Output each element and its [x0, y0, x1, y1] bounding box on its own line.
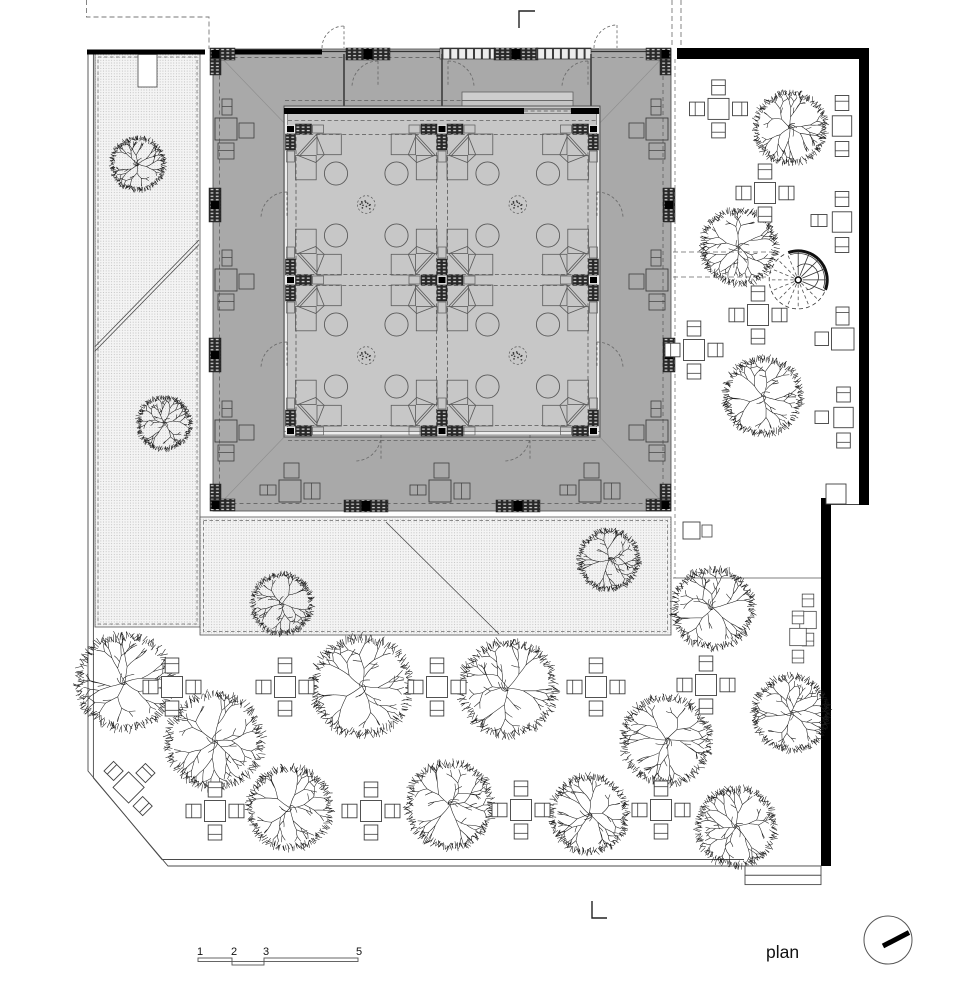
svg-text:3: 3	[263, 946, 269, 958]
svg-text:5: 5	[356, 946, 362, 958]
svg-text:2: 2	[231, 946, 237, 958]
svg-text:plan: plan	[766, 942, 799, 962]
svg-text:1: 1	[197, 946, 203, 958]
